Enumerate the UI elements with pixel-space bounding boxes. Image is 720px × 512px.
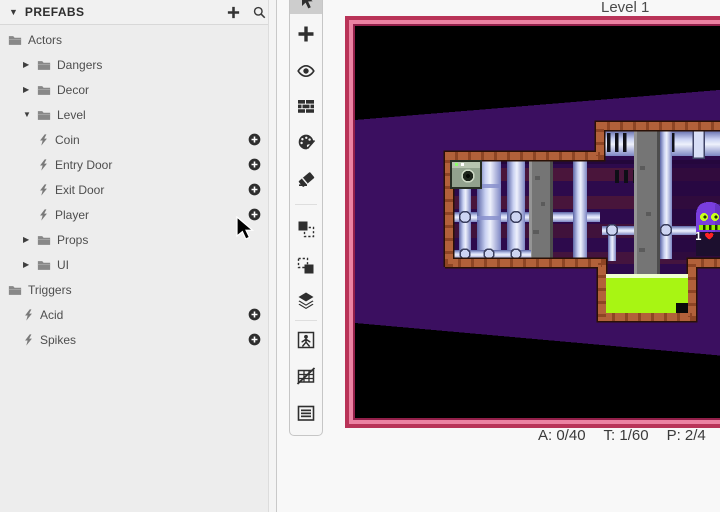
tree-item-label: Actors (28, 33, 62, 47)
add-prefab-button[interactable] (248, 158, 261, 171)
tree-item-exit-door[interactable]: Exit Door (0, 177, 268, 202)
tree-item-label: Level (57, 108, 86, 122)
folder-icon (37, 233, 51, 247)
prefab-tree: Actors▶Dangers▶Decor▼LevelCoinEntry Door… (0, 24, 268, 512)
pipe-joint (607, 225, 618, 236)
add-instance-icon (248, 308, 261, 321)
tool-actor-frame[interactable] (290, 327, 322, 353)
stat-tiles: T: 1/60 (604, 427, 649, 444)
plus-icon (296, 24, 316, 44)
tree-item-props[interactable]: ▶Props (0, 227, 268, 252)
tool-add-actor[interactable] (290, 21, 322, 47)
add-instance-icon (248, 158, 261, 171)
plus-icon (226, 5, 241, 20)
prefabs-panel: ▼ PREFABS Actors▶Dangers▶Decor▼LevelCoin… (0, 0, 277, 512)
prefab-bolt-icon (23, 334, 34, 346)
tree-item-coin[interactable]: Coin (0, 127, 268, 152)
add-instance-icon (248, 208, 261, 221)
tree-item-dangers[interactable]: ▶Dangers (0, 52, 268, 77)
add-instance-icon (248, 333, 261, 346)
expand-arrow-icon[interactable]: ▶ (23, 235, 37, 244)
folder-icon (37, 108, 51, 122)
folder-icon (37, 258, 51, 272)
expand-arrow-icon[interactable]: ▶ (23, 60, 37, 69)
tree-item-label: Spikes (40, 333, 76, 347)
person-box-icon (296, 330, 316, 350)
tree-item-label: Props (57, 233, 88, 247)
folder-icon (8, 283, 22, 297)
expand-arrow-icon[interactable]: ▶ (23, 85, 37, 94)
tree-item-label: Entry Door (55, 158, 112, 172)
stat-actors: A: 0/40 (538, 427, 586, 444)
eye-icon (296, 61, 316, 81)
tree-item-triggers[interactable]: Triggers (0, 277, 268, 302)
acid-pool[interactable] (606, 274, 688, 313)
concrete-column (529, 156, 553, 263)
toolbar-divider (295, 204, 317, 205)
tree-item-spikes[interactable]: Spikes (0, 327, 268, 352)
scene-canvas: 1 (355, 26, 720, 418)
player-character[interactable]: 1 (695, 202, 720, 256)
search-icon (252, 5, 267, 20)
pipe-joint (661, 225, 672, 236)
layers-icon (296, 290, 316, 310)
add-prefab-button[interactable] (248, 133, 261, 146)
folder-icon (37, 83, 51, 97)
tree-item-entry-door[interactable]: Entry Door (0, 152, 268, 177)
canvas-area: Level 1 (277, 0, 720, 512)
tree-item-label: Exit Door (55, 183, 104, 197)
tree-item-ui[interactable]: ▶UI (0, 252, 268, 277)
tree-item-actors[interactable]: Actors (0, 27, 268, 52)
tool-send-to-back[interactable] (290, 253, 322, 279)
add-prefab-header-button[interactable] (226, 5, 241, 20)
level-stats: A: 0/40T: 1/60P: 2/4 (538, 427, 706, 444)
tool-visibility[interactable] (290, 58, 322, 84)
tree-item-label: Player (55, 208, 89, 222)
add-prefab-button[interactable] (248, 208, 261, 221)
expand-arrow-icon[interactable]: ▶ (23, 260, 37, 269)
prefab-bolt-icon (38, 209, 49, 221)
tool-select[interactable] (290, 0, 322, 14)
concrete-column (634, 126, 660, 278)
add-prefab-button[interactable] (248, 183, 261, 196)
copy-front-icon (296, 219, 316, 239)
tool-paint[interactable] (290, 129, 322, 155)
panel-title: PREFABS (25, 5, 215, 19)
bricks-icon (296, 96, 316, 116)
tree-item-label: Triggers (28, 283, 72, 297)
prefab-bolt-icon (38, 134, 49, 146)
level-title: Level 1 (601, 0, 649, 16)
tree-item-level[interactable]: ▼Level (0, 102, 268, 127)
player-lives-count: 1 (695, 230, 702, 243)
stat-prefabs: P: 2/4 (667, 427, 706, 444)
search-prefabs-button[interactable] (252, 5, 267, 20)
tool-properties[interactable] (290, 400, 322, 426)
tool-column (289, 0, 323, 436)
tool-tile-brush[interactable] (290, 93, 322, 119)
eraser-icon (296, 168, 316, 188)
folder-icon (37, 58, 51, 72)
add-instance-icon (248, 133, 261, 146)
pipe-joint (460, 212, 471, 223)
level-canvas-frame: 1 (345, 16, 720, 428)
folder-icon (8, 33, 22, 47)
vertical-pipe (507, 160, 525, 259)
collapse-panel-icon[interactable]: ▼ (9, 7, 18, 17)
list-icon (296, 403, 316, 423)
tree-item-acid[interactable]: Acid (0, 302, 268, 327)
tool-eraser[interactable] (290, 165, 322, 191)
tree-item-label: UI (57, 258, 69, 272)
add-prefab-button[interactable] (248, 333, 261, 346)
pipe-joint (511, 212, 522, 223)
copy-back-icon (296, 256, 316, 276)
collapse-arrow-icon[interactable]: ▼ (23, 110, 37, 119)
cursor-icon (296, 0, 316, 11)
prefab-bolt-icon (23, 309, 34, 321)
level-canvas[interactable]: 1 (353, 24, 720, 420)
prefabs-panel-header[interactable]: ▼ PREFABS (0, 0, 276, 25)
grid-off-icon (296, 366, 316, 386)
level-canvas-frame-inner: 1 (349, 20, 720, 424)
tool-toggle-grid[interactable] (290, 363, 322, 389)
palette-icon (296, 132, 316, 152)
tool-layers[interactable] (290, 287, 322, 313)
tree-item-label: Dangers (57, 58, 102, 72)
vertical-pipe (660, 130, 672, 259)
sidebar-scrollbar[interactable] (268, 0, 276, 512)
tool-bring-to-front[interactable] (290, 216, 322, 242)
add-prefab-button[interactable] (248, 308, 261, 321)
prefab-bolt-icon (38, 159, 49, 171)
tree-item-label: Acid (40, 308, 63, 322)
toolbar-divider (295, 320, 317, 321)
camera-prop[interactable] (451, 161, 481, 188)
add-instance-icon (248, 183, 261, 196)
tree-item-player[interactable]: Player (0, 202, 268, 227)
prefab-bolt-icon (38, 184, 49, 196)
tree-item-decor[interactable]: ▶Decor (0, 77, 268, 102)
tree-item-label: Coin (55, 133, 80, 147)
tree-item-label: Decor (57, 83, 89, 97)
